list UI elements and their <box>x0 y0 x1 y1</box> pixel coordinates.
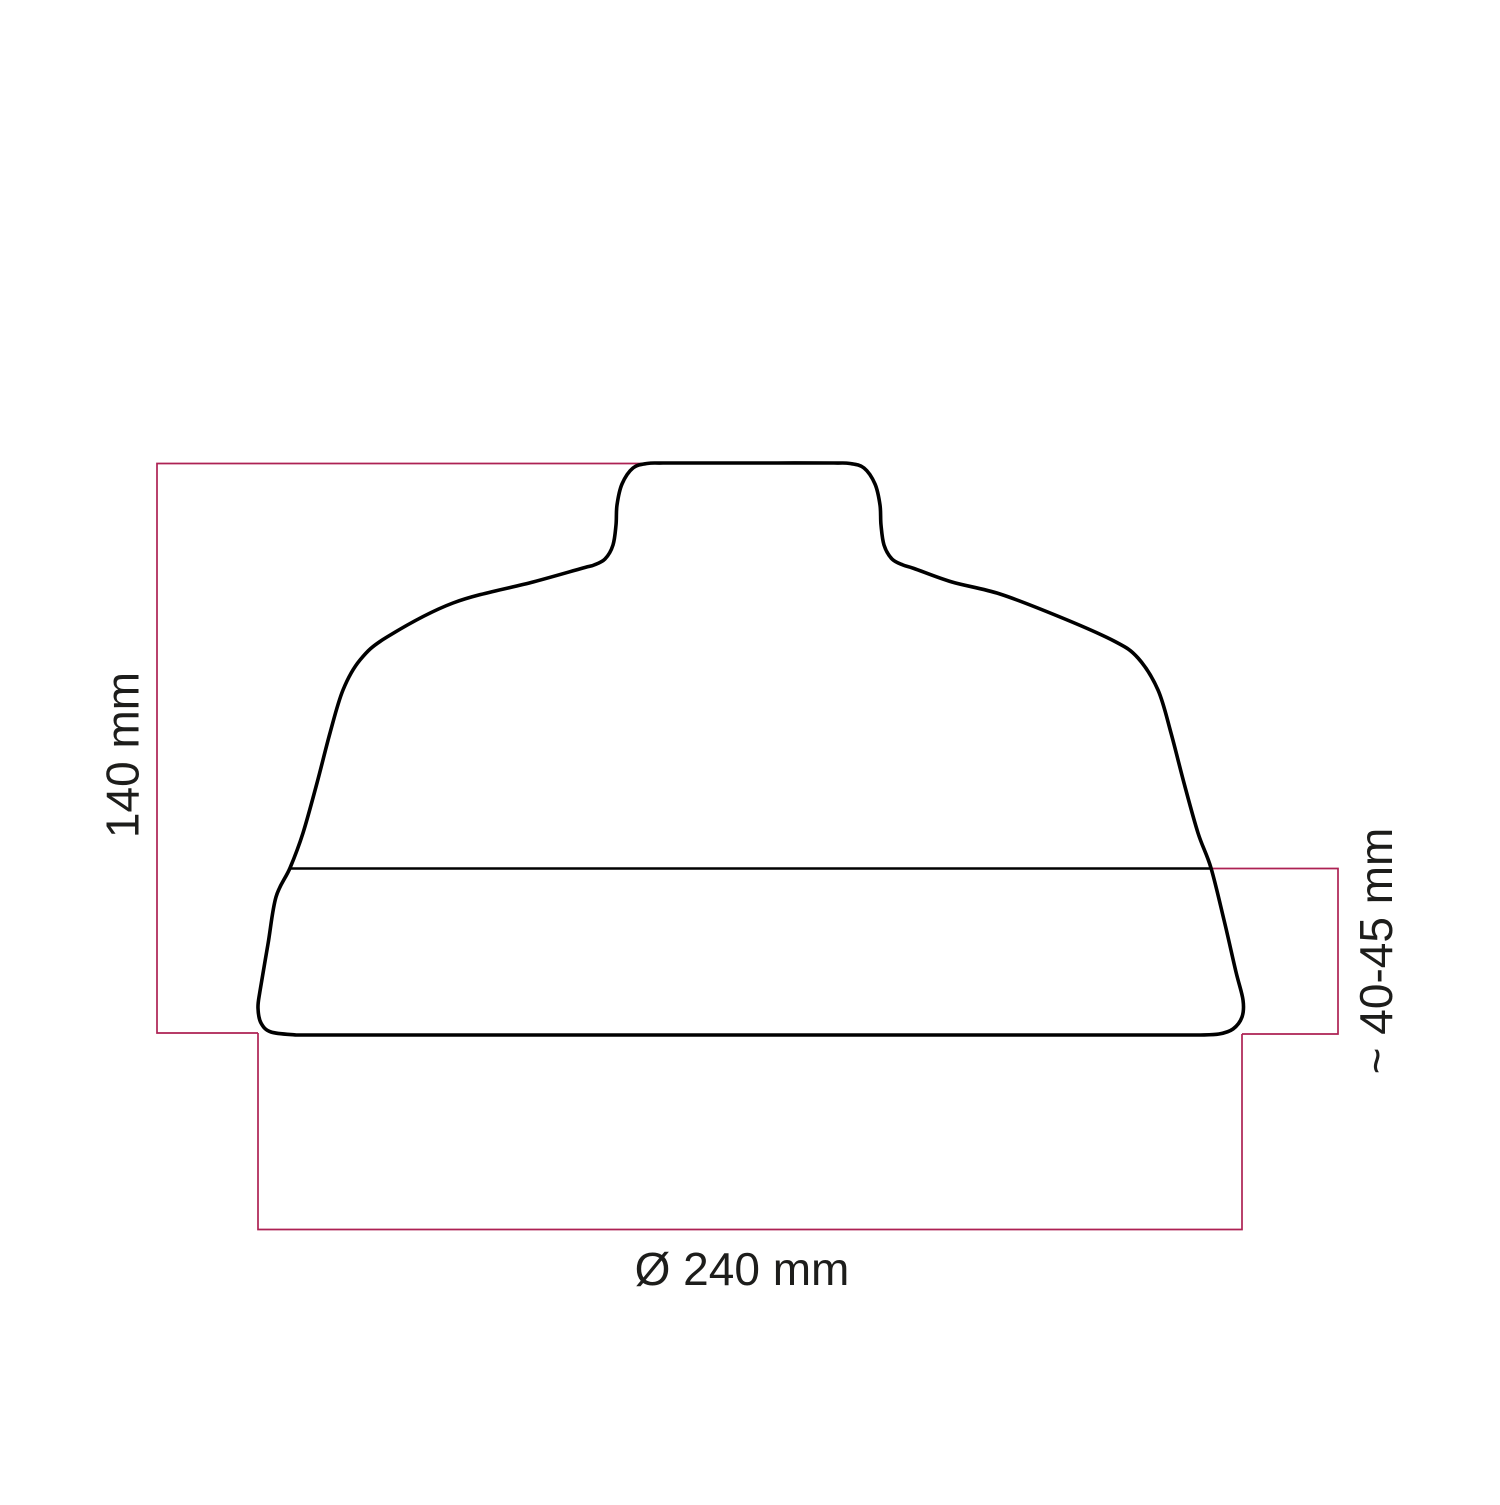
svg-text:140 mm: 140 mm <box>97 672 149 838</box>
svg-text:Ø 240 mm: Ø 240 mm <box>635 1243 850 1295</box>
svg-text:~ 40-45 mm: ~ 40-45 mm <box>1350 828 1402 1075</box>
